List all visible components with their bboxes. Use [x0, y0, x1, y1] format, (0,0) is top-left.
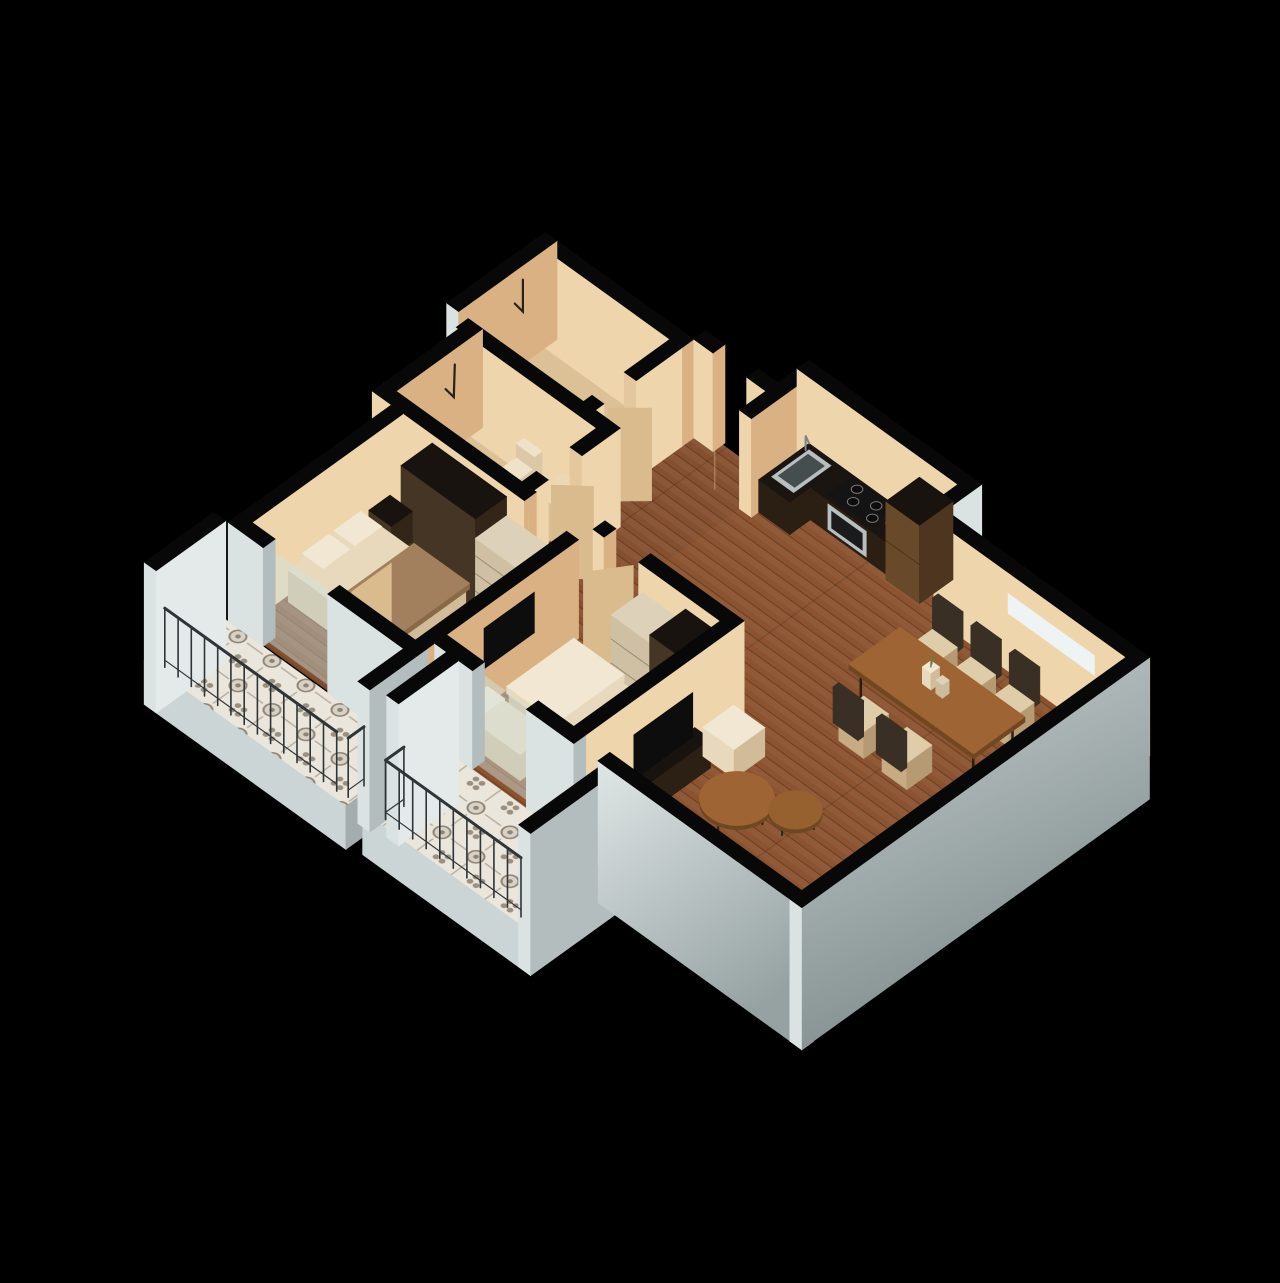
stove-burner-1 — [851, 485, 863, 493]
dining-chair-4-back-se-face — [858, 701, 864, 741]
stove-burner-1-top — [851, 485, 863, 493]
wall-entry-ne-a — [694, 331, 725, 452]
wall-se-exterior-sw-face — [790, 899, 802, 1050]
dining-chair-1-back-se-face — [957, 612, 963, 652]
refrigerator — [886, 477, 953, 604]
isometric-floorplan-render — [0, 0, 1280, 1283]
stove-burner-2-top — [870, 502, 882, 510]
coffee-table-small-top — [768, 790, 822, 829]
wall-entry-ne-a-sw-face — [694, 339, 713, 451]
stove-burner-4-top — [867, 514, 879, 522]
wall-master-sw-a — [228, 514, 275, 647]
dining-chair-2-back-se-face — [996, 639, 1002, 679]
floorplan-stage — [0, 0, 1280, 1283]
stove-burner-4 — [867, 514, 879, 522]
wall-bedroom2-sw-a-se-face — [473, 662, 485, 769]
stove-burner-2 — [870, 502, 882, 510]
coffee-table-large-top — [699, 771, 775, 826]
wall-kitchen-nw-sw-face — [739, 410, 751, 517]
wall-balcony1-nw-sw-face — [144, 562, 156, 713]
dining-chair-5-back-se-face — [901, 732, 907, 772]
vase-2 — [936, 675, 950, 698]
wall-bath2-ne-se-face — [682, 339, 694, 446]
wall-balcony2-nw-sw-face — [387, 695, 399, 846]
stove-burner-3 — [847, 498, 859, 506]
wall-master-sw-a-se-face — [263, 539, 275, 646]
stove-burner-3-top — [847, 498, 859, 506]
dining-chair-3-back-se-face — [1034, 667, 1040, 707]
